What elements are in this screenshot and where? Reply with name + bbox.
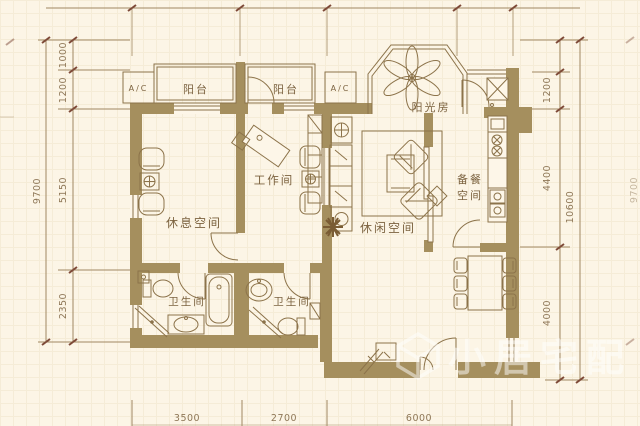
toilet xyxy=(278,318,305,335)
dim-right-outer-total: 9700 xyxy=(629,177,640,203)
shower-lines xyxy=(249,307,283,338)
label-workroom: 工作间 xyxy=(254,173,295,187)
sofa xyxy=(330,145,352,207)
door-sunroom-prep xyxy=(462,80,489,107)
dim-left-total: 9700 xyxy=(32,178,43,204)
label-ac-right: A/C xyxy=(331,84,351,93)
label-prep-space-1: 备餐 xyxy=(457,172,483,186)
dim-left-seg-1: 1200 xyxy=(58,77,69,103)
dim-right-total: 10600 xyxy=(565,191,576,224)
label-bathroom-left: 卫生间 xyxy=(168,295,206,308)
side-table xyxy=(140,173,159,190)
window xyxy=(130,195,142,218)
side-table xyxy=(302,171,319,187)
plant xyxy=(323,217,343,237)
label-ac-left: A/C xyxy=(129,84,149,93)
shower-fixture xyxy=(310,303,320,319)
dining-table xyxy=(468,256,502,310)
label-prep-space-2: 空间 xyxy=(457,188,483,202)
window xyxy=(284,103,314,114)
bathtub xyxy=(206,274,232,326)
door-balcony xyxy=(248,77,274,103)
armchair xyxy=(139,193,164,215)
watermark-text: 小居宅配 xyxy=(448,336,632,380)
window xyxy=(467,68,506,76)
dim-left-seg-3: 2350 xyxy=(58,293,69,319)
door-workroom xyxy=(211,233,238,260)
label-rest-space: 休息空间 xyxy=(166,215,222,230)
dim-right-seg-0: 1200 xyxy=(542,77,553,103)
bathroom-right-fixtures xyxy=(246,279,320,338)
label-balcony-left: 阳台 xyxy=(183,82,209,96)
dim-bottom-seg-1: 2700 xyxy=(271,413,297,424)
dim-bottom-seg-2: 6000 xyxy=(406,413,432,424)
sink xyxy=(168,315,204,334)
end-table xyxy=(331,117,352,143)
label-sunroom: 阳光房 xyxy=(412,100,451,114)
dim-left-seg-0: 1000 xyxy=(58,42,69,68)
chair xyxy=(300,146,320,168)
cube-logo-icon xyxy=(398,334,438,378)
label-bathroom-right: 卫生间 xyxy=(273,295,311,308)
armchair xyxy=(139,148,164,170)
kitchen-counter xyxy=(488,116,507,222)
label-leisure-space: 休闲空间 xyxy=(360,221,416,235)
dim-bottom-seg-0: 3500 xyxy=(174,413,200,424)
dim-right-seg-1: 4400 xyxy=(542,165,553,191)
appliance xyxy=(487,78,508,107)
window xyxy=(174,103,220,114)
door-prep-dining xyxy=(453,220,480,247)
label-balcony-right: 阳台 xyxy=(273,82,299,96)
floor-plan-canvas: 9700 1000 1200 5150 2350 1200 4400 4000 … xyxy=(0,0,640,426)
sink xyxy=(246,279,272,301)
partition-line xyxy=(324,148,329,205)
floor-plan: 9700 1000 1200 5150 2350 1200 4400 4000 … xyxy=(0,0,640,426)
dim-right-seg-2: 4000 xyxy=(542,300,553,326)
watermark: 小居宅配 xyxy=(398,334,632,380)
dim-left-seg-2: 5150 xyxy=(58,177,69,203)
